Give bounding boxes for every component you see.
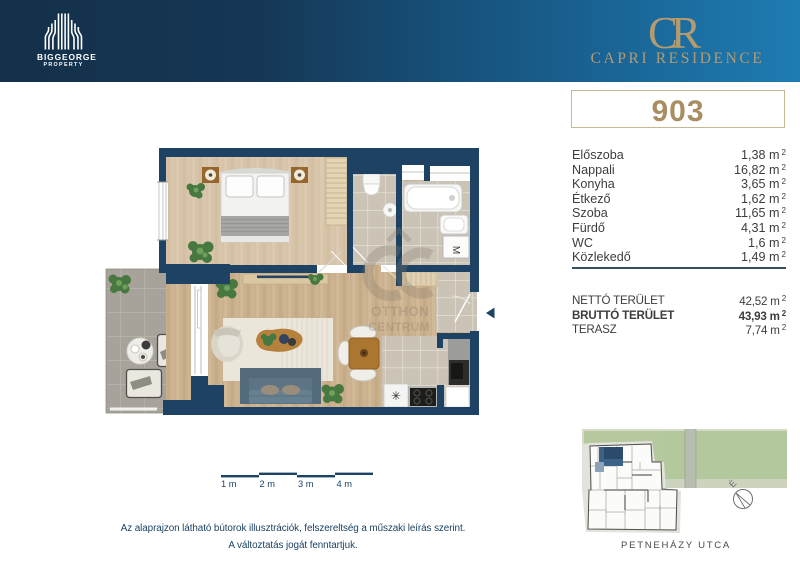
svg-text:OTTHON: OTTHON: [371, 304, 429, 319]
svg-text:1 m: 1 m: [221, 479, 237, 489]
svg-text:CENTRUM: CENTRUM: [368, 320, 429, 334]
svg-text:4 m: 4 m: [337, 479, 353, 489]
svg-text:M: M: [450, 246, 461, 254]
svg-text:2 m: 2 m: [260, 479, 276, 489]
svg-text:3 m: 3 m: [298, 479, 314, 489]
svg-text:✳: ✳: [391, 389, 401, 403]
